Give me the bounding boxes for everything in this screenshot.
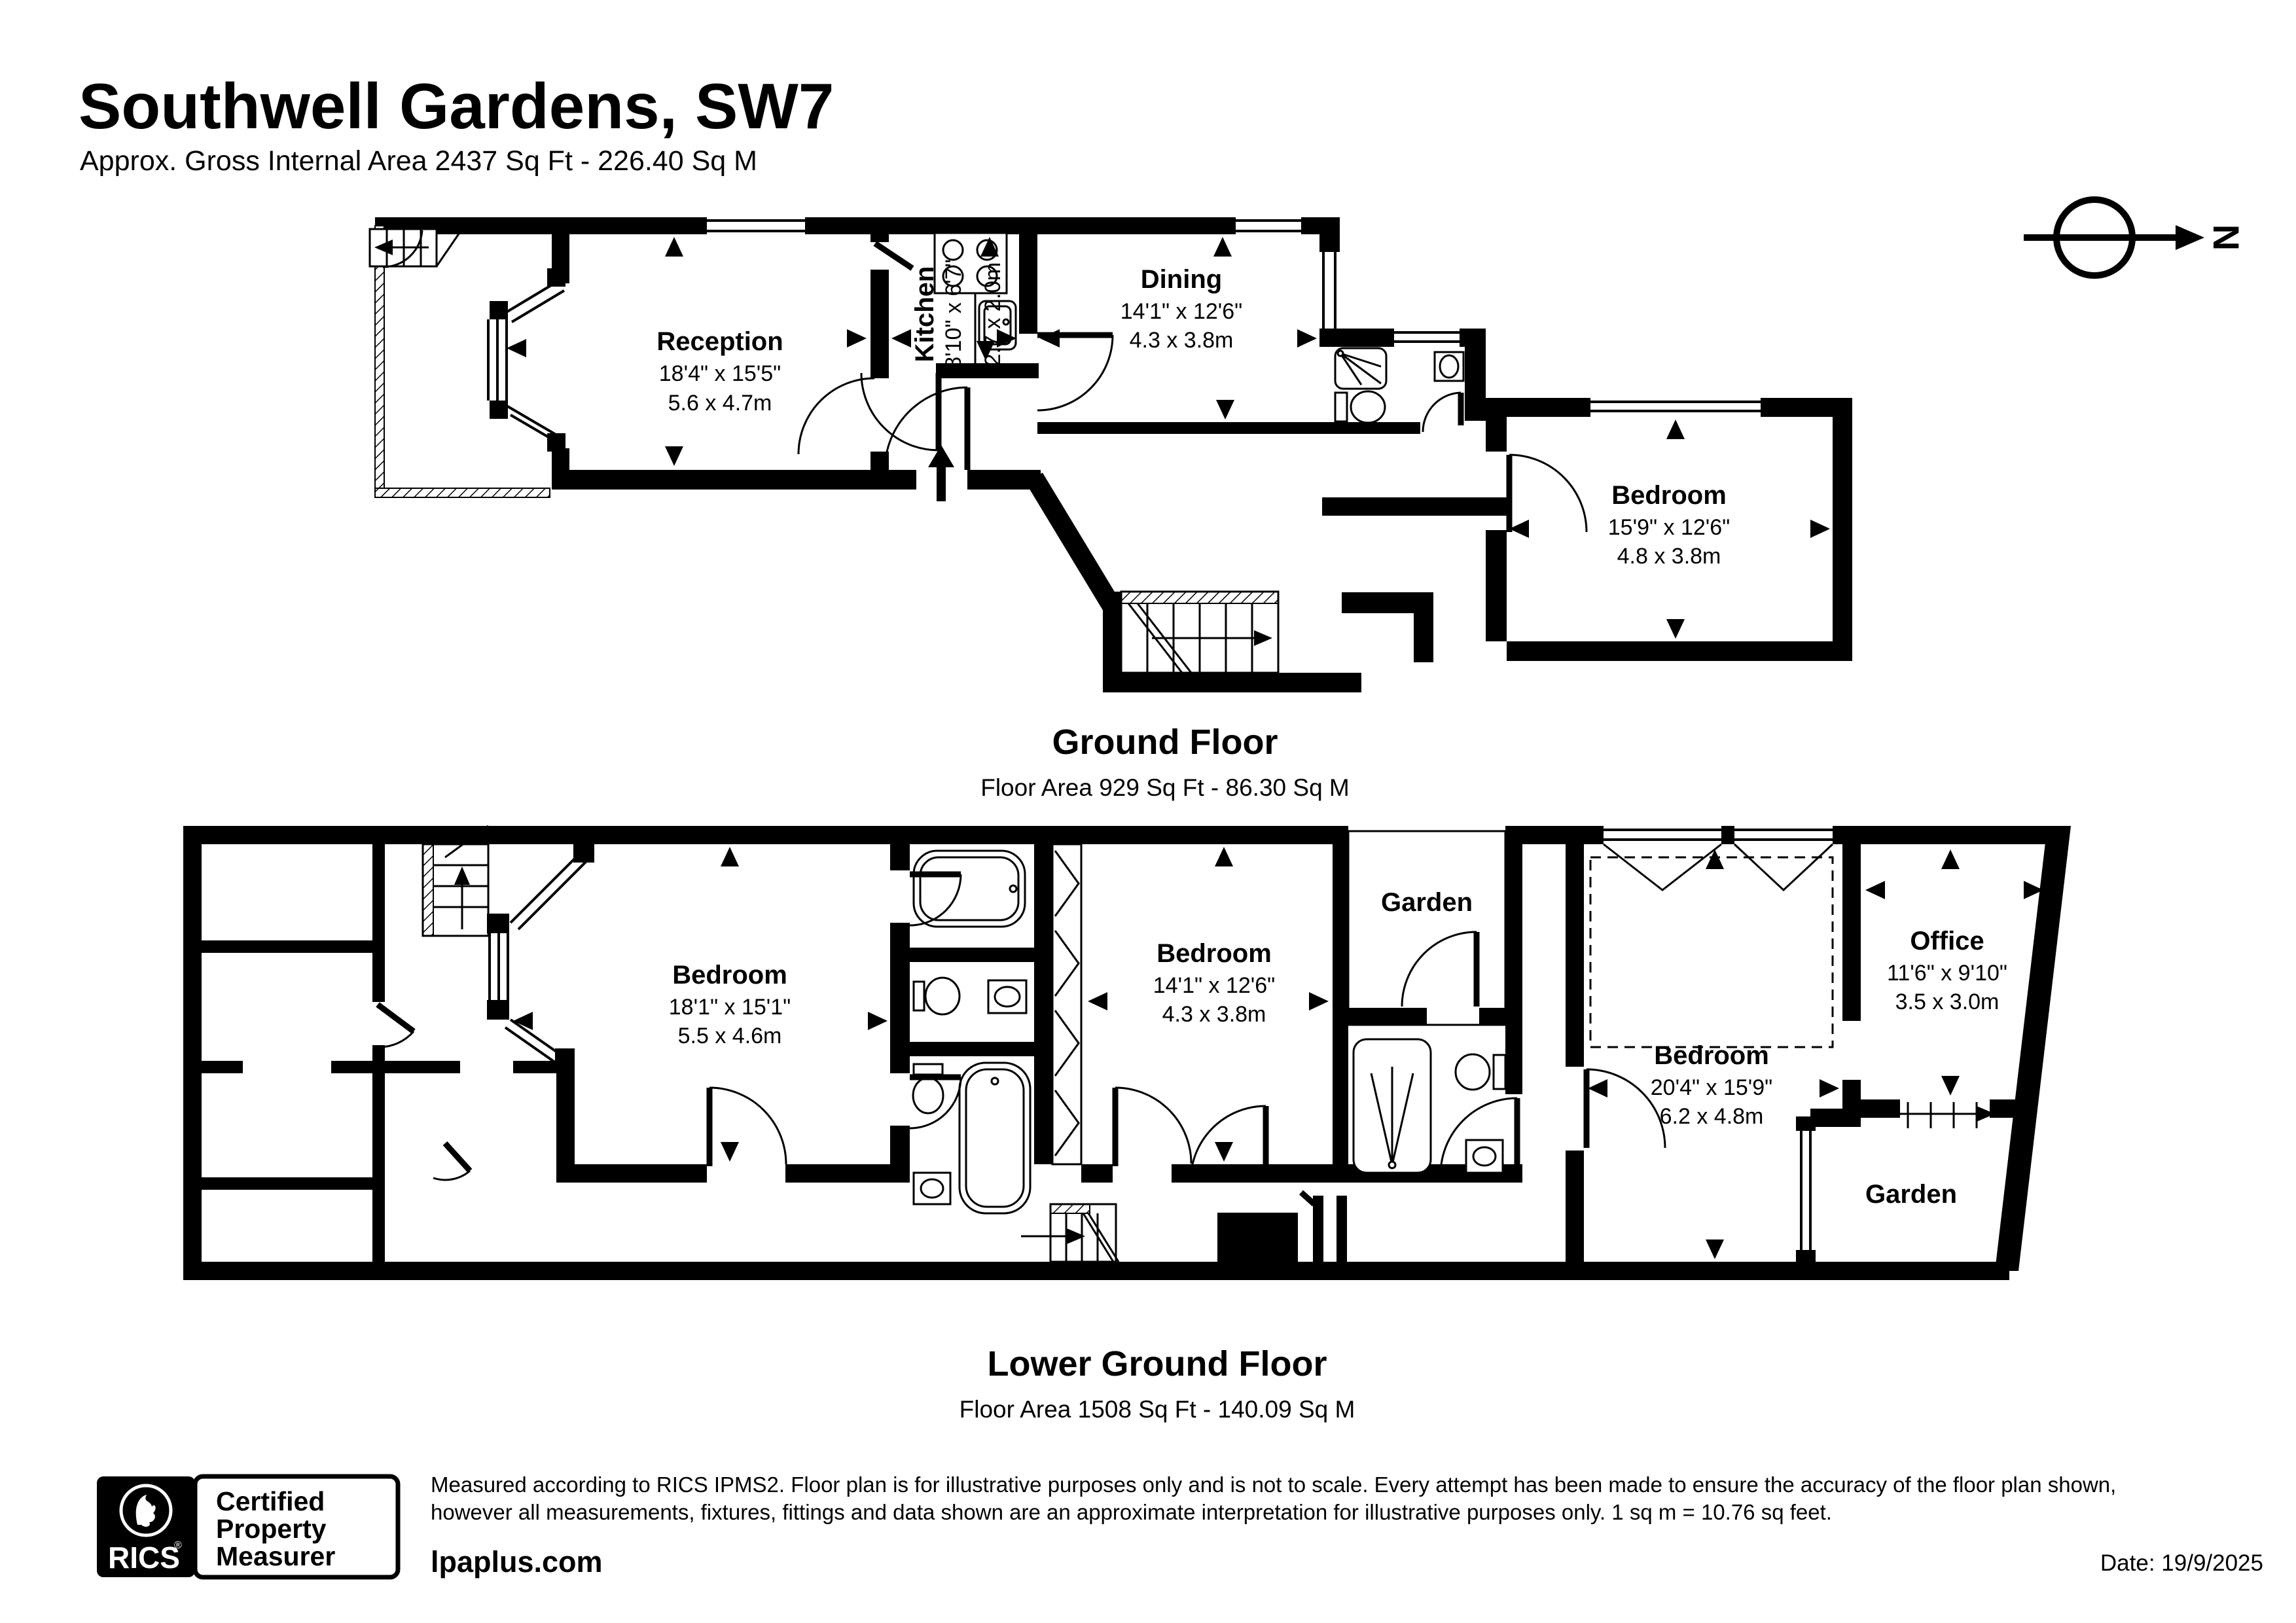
disclaimer-line-1: Measured according to RICS IPMS2. Floor … [431,1472,2116,1497]
badge-line: Certified [216,1486,325,1516]
staircase-lower-icon [1021,1204,1119,1262]
toilet-icon [913,1064,943,1113]
disclaimer-line-2: however all measurements, fixtures, fitt… [431,1500,1832,1524]
room-label: Bedroom [1654,1041,1769,1070]
room-size-metric: 4.8 x 3.8m [1617,544,1721,569]
sink-icon [914,1173,950,1204]
rics-brand: RICS [108,1541,180,1575]
ground-floor-plan: Reception 18'4" x 15'5" 5.6 x 4.7m [370,217,1852,692]
shower-icon [1354,1039,1431,1173]
lower-ground-floor-plan: Bedroom 18'1" x 15'1" 5.5 x 4.6m [183,826,2071,1280]
room-size-imperial: 14'1" x 12'6" [1121,299,1242,324]
entrance-arrow-icon [928,445,954,501]
sink-icon [988,980,1026,1013]
garden-label: Garden [1865,1180,1957,1209]
room-size-metric: 4.3 x 3.8m [1162,1002,1266,1027]
room-size-imperial: 11'6" x 9'10" [1887,961,2007,986]
toilet-icon [914,978,960,1014]
rics-logo: RICS ® Certified Property Measurer [97,1476,398,1577]
room-size-metric: 5.6 x 4.7m [668,391,772,416]
rics-registered-mark: ® [174,1540,182,1551]
garden-label: Garden [1381,888,1473,917]
room-bedroom-lgf-2: Bedroom 14'1" x 12'6" 4.3 x 3.8m [1052,844,1359,1183]
floor-title: Ground Floor [1052,722,1278,762]
compass-north-icon: N [2024,200,2247,276]
room-label: Kitchen [910,266,939,363]
footer: RICS ® Certified Property Measurer Measu… [97,1472,2263,1578]
compass-north-label: N [2206,224,2247,251]
bath-icon [960,1063,1030,1213]
room-bedroom-gf: Bedroom 15'9" x 12'6" 4.8 x 3.8m [1486,398,1852,661]
entrance [885,387,1111,605]
dining-top-window-icon [1236,221,1301,231]
bedroom-window-icon [1590,402,1761,411]
terrace [370,226,550,497]
room-office: Office 11'6" x 9'10" 3.5 x 3.0m [1810,826,2043,1128]
room-bathroom-gf [1335,329,1486,432]
date-label: Date: 19/9/2025 [2100,1550,2263,1576]
floorplan-document: Southwell Gardens, SW7 Approx. Gross Int… [0,0,2296,1623]
room-size-metric: 3.5 x 3.0m [1895,990,2000,1014]
header: Southwell Gardens, SW7 Approx. Gross Int… [79,70,834,177]
bath-icon [914,851,1025,927]
room-label: Bedroom [1611,481,1727,510]
bathroom-stack [890,844,1052,1213]
garden-rear: Garden [1865,1180,1957,1209]
page-title: Southwell Gardens, SW7 [79,70,834,142]
room-label: Dining [1141,265,1222,294]
ground-floor-caption: Ground Floor Floor Area 929 Sq Ft - 86.3… [980,722,1350,801]
room-size-imperial: 14'1" x 12'6" [1153,973,1275,998]
room-label: Office [1910,927,1984,955]
garden-door-glazing-icon [1796,1116,1816,1262]
badge-line: Property [216,1514,327,1544]
room-label: Bedroom [1157,939,1272,968]
page-subtitle: Approx. Gross Internal Area 2437 Sq Ft -… [80,145,757,177]
room-label: Bedroom [672,961,787,990]
room-size-imperial: 15'9" x 12'6" [1608,515,1730,540]
toilet-icon [1335,391,1385,423]
dining-side-window-icon [1323,252,1335,329]
reception-top-window-icon [707,221,805,231]
staircase-down-icon [1103,592,1433,692]
floor-area: Floor Area 929 Sq Ft - 86.30 Sq M [980,774,1350,801]
badge-line: Measurer [216,1541,335,1571]
room-bedroom-lgf-1: Bedroom 18'1" x 15'1" 5.5 x 4.6m [385,844,910,1183]
lower-ground-floor-caption: Lower Ground Floor Floor Area 1508 Sq Ft… [960,1344,1355,1423]
floor-area: Floor Area 1508 Sq Ft - 140.09 Sq M [960,1396,1355,1423]
room-size-imperial: 18'1" x 15'1" [669,995,791,1020]
room-size-metric: 2.7 x 2.0m [980,262,1005,366]
room-size-metric: 4.3 x 3.8m [1130,328,1234,353]
sink-icon [1466,1140,1503,1173]
room-size-imperial: 20'4" x 15'9" [1651,1075,1772,1100]
room-size-metric: 5.5 x 4.6m [678,1024,782,1048]
room-shower [1348,826,1522,1183]
room-reception: Reception 18'4" x 15'5" 5.6 x 4.7m [488,234,916,490]
sink-icon [1435,352,1463,381]
room-size-imperial: 18'4" x 15'5" [659,361,781,386]
room-label: Reception [656,327,783,356]
room-size-metric: 6.2 x 4.8m [1660,1104,1764,1129]
room-bedroom-lgf-3: Bedroom 20'4" x 15'9" 6.2 x 4.8m [1566,830,1839,1262]
floor-title: Lower Ground Floor [988,1344,1327,1383]
bay-window-icon [488,268,565,452]
website-link: lpaplus.com [431,1545,603,1578]
room-size-imperial: 8'10" x 6'7" [941,259,966,369]
shower-icon [1335,348,1386,389]
wardrobe-icon [1052,844,1081,1164]
bathroom-window-icon [1394,332,1460,342]
toilet-icon [1456,1054,1505,1090]
